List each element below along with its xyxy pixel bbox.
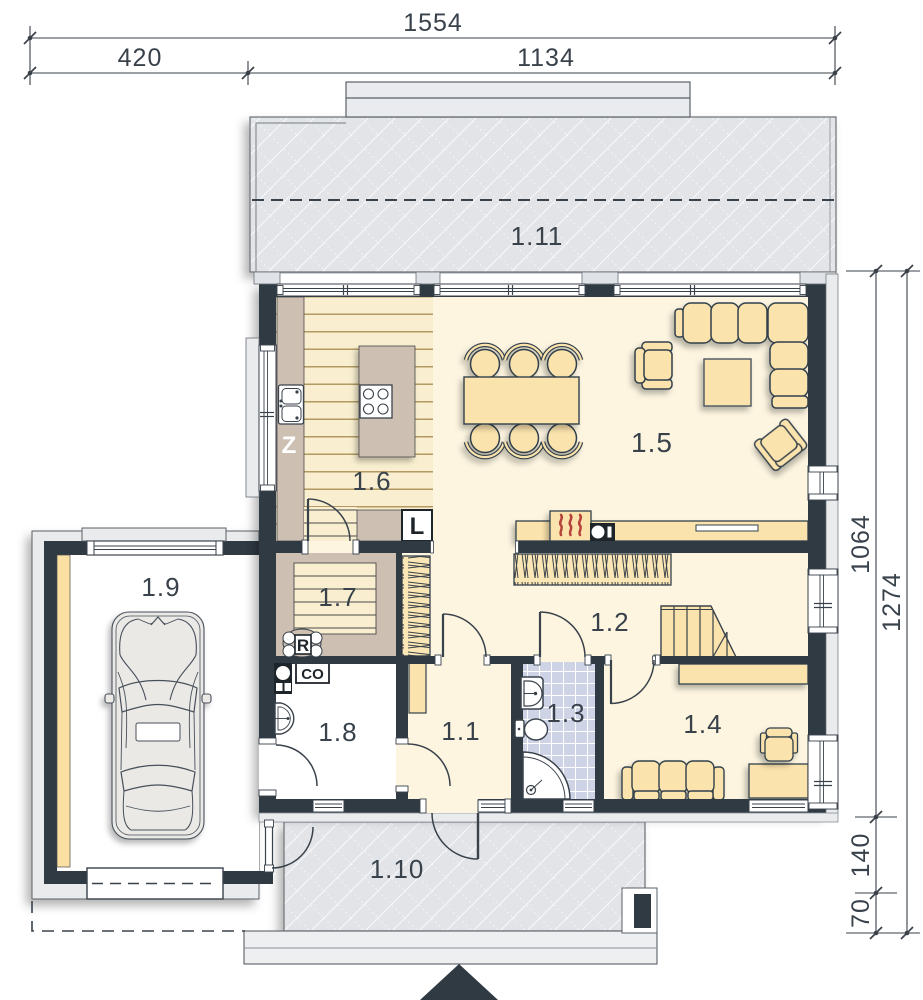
svg-text:R: R bbox=[297, 636, 309, 655]
svg-text:1134: 1134 bbox=[517, 44, 575, 72]
svg-text:420: 420 bbox=[118, 44, 163, 72]
svg-text:1.5: 1.5 bbox=[631, 427, 673, 458]
svg-text:1.8: 1.8 bbox=[318, 717, 357, 747]
svg-text:1554: 1554 bbox=[403, 9, 463, 37]
svg-text:1.1: 1.1 bbox=[441, 716, 480, 746]
svg-text:1.9: 1.9 bbox=[141, 572, 180, 602]
svg-text:1.11: 1.11 bbox=[511, 221, 564, 251]
svg-text:1.2: 1.2 bbox=[590, 607, 629, 637]
svg-text:CO: CO bbox=[301, 666, 324, 683]
svg-text:L: L bbox=[410, 513, 425, 540]
svg-text:1.6: 1.6 bbox=[352, 466, 391, 496]
svg-text:1.3: 1.3 bbox=[546, 698, 585, 728]
svg-text:Z: Z bbox=[282, 432, 297, 459]
svg-text:140: 140 bbox=[847, 833, 875, 878]
svg-text:1.10: 1.10 bbox=[370, 854, 425, 884]
svg-text:70: 70 bbox=[847, 898, 875, 928]
svg-text:1064: 1064 bbox=[847, 514, 875, 574]
svg-text:1.7: 1.7 bbox=[318, 582, 357, 612]
svg-text:1274: 1274 bbox=[878, 572, 906, 632]
svg-text:1.4: 1.4 bbox=[683, 709, 722, 739]
